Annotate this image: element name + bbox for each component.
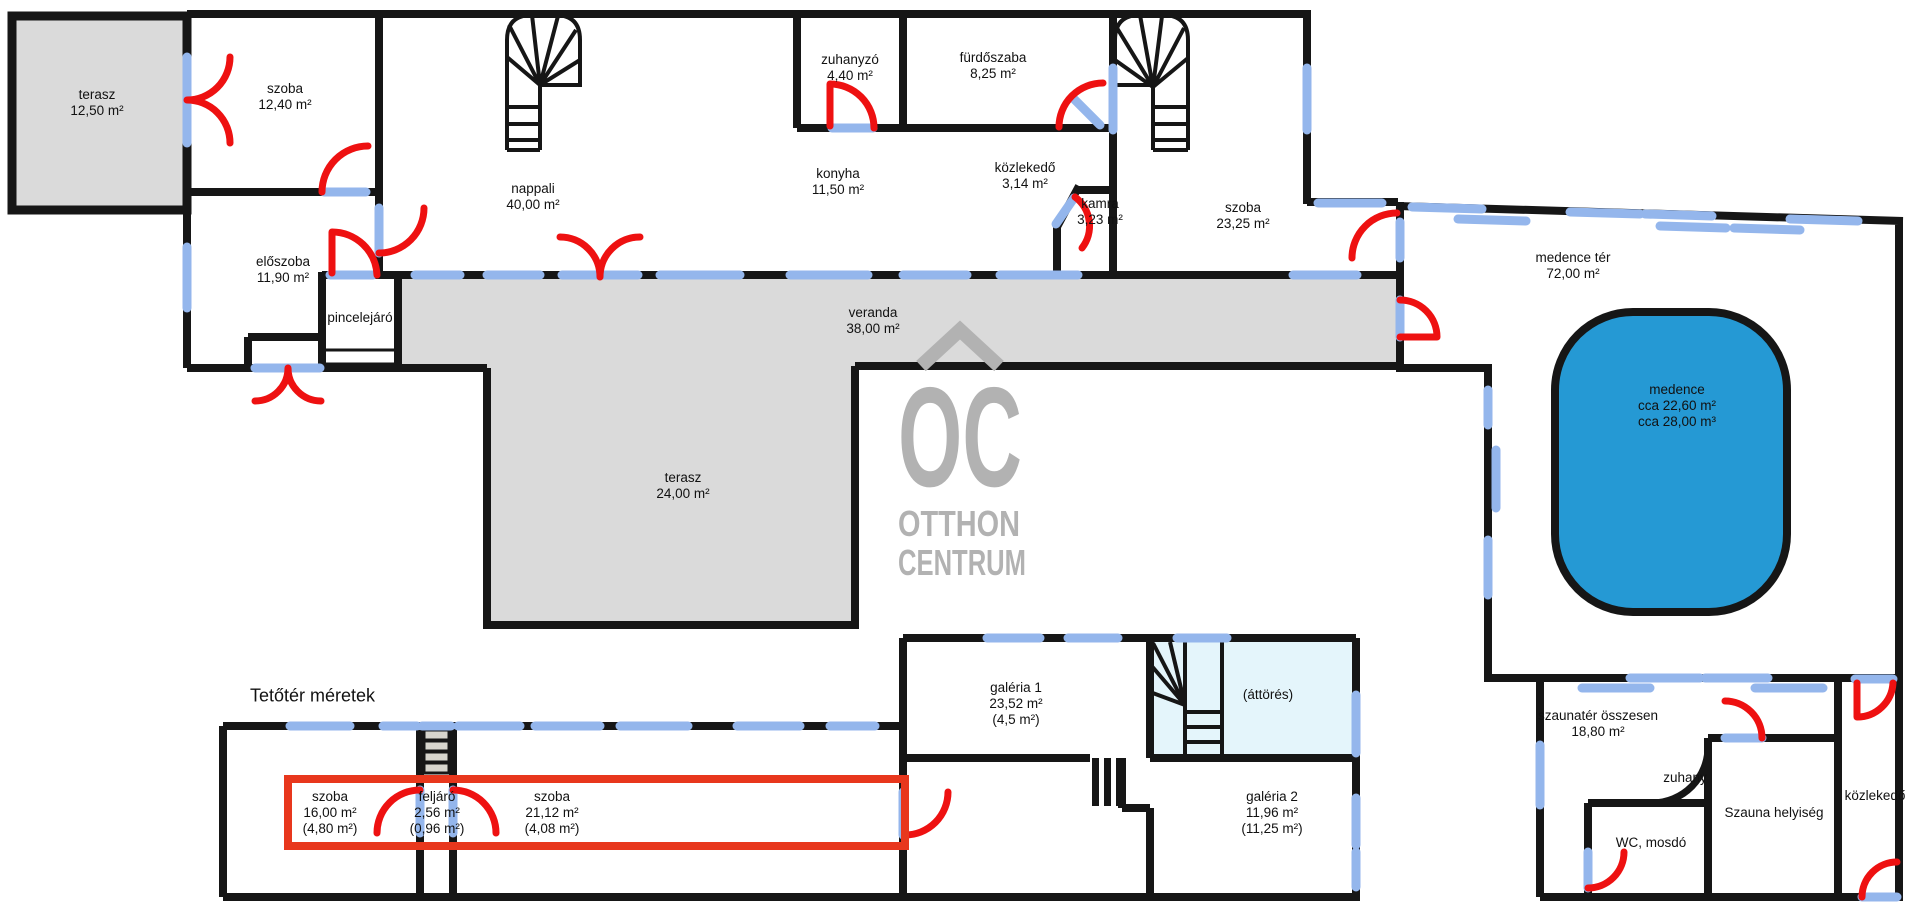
room-label-pincelejaro: pincelejáró	[327, 310, 392, 326]
room-label-kozlekedo-also: közlekedő	[1845, 788, 1906, 804]
room-label-kamra: kamra 3,23 m²	[1077, 196, 1123, 228]
room-label-terasz-also: terasz 24,00 m²	[656, 470, 709, 502]
room-label-terasz-felso: terasz 12,50 m²	[70, 87, 123, 119]
room-label-nappali: nappali 40,00 m²	[506, 181, 559, 213]
room-label-konyha: konyha 11,50 m²	[812, 166, 864, 198]
logo-initials: OC	[898, 358, 1022, 517]
room-label-zuhany: zuhany	[1663, 770, 1707, 786]
room-label-galeria-1: galéria 1 23,52 m² (4,5 m²)	[989, 680, 1042, 728]
room-label-szauna-helyiseg: Szauna helyiség	[1724, 805, 1823, 821]
room-label-veranda: veranda 38,00 m²	[846, 305, 899, 337]
room-label-furdoszaba: fürdőszaba 8,25 m²	[960, 50, 1027, 82]
room-label-tetoter-szoba-2: szoba 21,12 m² (4,08 m²)	[525, 789, 580, 837]
room-label-szoba-2325: szoba 23,25 m²	[1216, 200, 1269, 232]
room-label-tetoter-szoba-1: szoba 16,00 m² (4,80 m²)	[303, 789, 358, 837]
floor-plan: OC OTTHON CENTRUM terasz 12,50 m² szoba …	[0, 0, 1920, 910]
room-label-kozlekedo-felso: közlekedő 3,14 m²	[995, 160, 1056, 192]
room-label-eloszoba: előszoba 11,90 m²	[256, 254, 310, 286]
room-label-galeria-2: galéria 2 11,96 m² (11,25 m²)	[1241, 789, 1302, 837]
room-label-feljaro: feljáró 2,56 m² (0,96 m²)	[410, 789, 465, 837]
room-label-medence-ter: medence tér 72,00 m²	[1535, 250, 1610, 282]
room-label-medence: medence cca 22,60 m² cca 28,00 m³	[1638, 382, 1716, 430]
terrace-fills	[12, 16, 1400, 625]
room-label-szoba-1240: szoba 12,40 m²	[258, 81, 311, 113]
section-heading: Tetőtér méretek	[250, 686, 375, 707]
room-label-zuhanyzo: zuhanyzó 4,40 m²	[821, 52, 879, 84]
logo-name-line2: CENTRUM	[898, 542, 1026, 583]
logo-name-line1: OTTHON	[898, 503, 1020, 544]
feljaro-stair	[424, 730, 449, 773]
room-label-wc-mosdo: WC, mosdó	[1616, 835, 1687, 851]
room-label-szaunater: szaunatér összesen 18,80 m²	[1538, 708, 1658, 740]
pool	[1555, 312, 1787, 612]
room-label-attores: (áttörés)	[1243, 687, 1293, 703]
floor-plan-svg: OC OTTHON CENTRUM	[0, 0, 1920, 910]
watermark-logo: OC OTTHON CENTRUM	[898, 330, 1026, 583]
railing	[1092, 758, 1123, 806]
